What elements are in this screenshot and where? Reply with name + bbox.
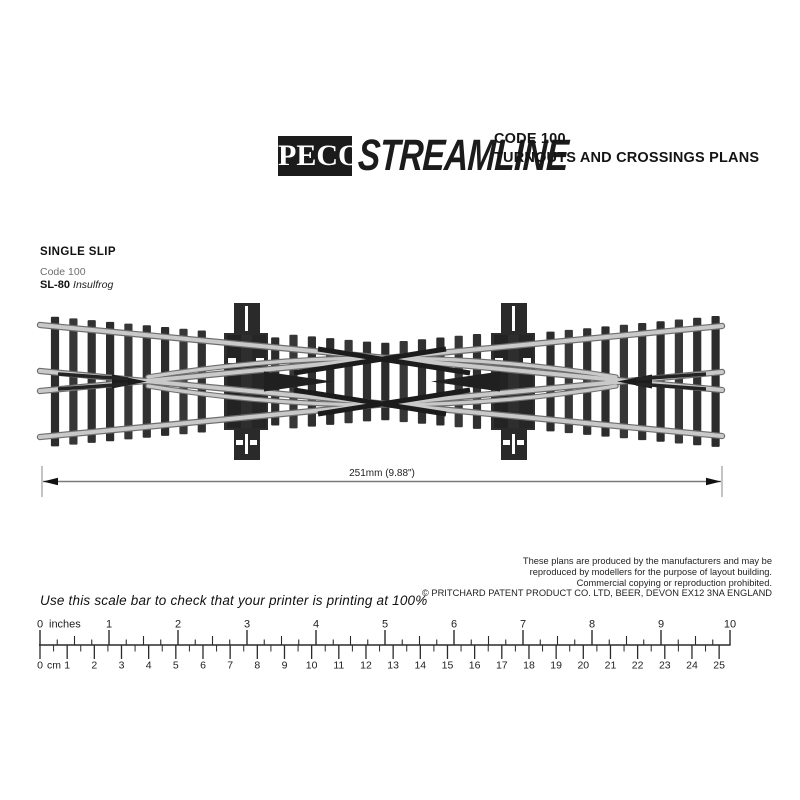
check-rail [58, 374, 128, 379]
cm-tick-label: 4 [146, 660, 152, 672]
cm-tick-label: 12 [360, 660, 372, 672]
inch-tick-label: 0 [37, 619, 43, 631]
cm-tick-label: 25 [713, 660, 725, 672]
dimension-label: 251mm (9.88") [349, 468, 415, 479]
cm-tick-label: 19 [550, 660, 562, 672]
inch-tick-label: 5 [382, 619, 388, 631]
product-sku-number: SL-80 [40, 279, 70, 291]
check-rail [58, 384, 128, 389]
dimension-arrow: 251mm (9.88") [0, 460, 800, 505]
cm-tick-label: 3 [119, 660, 125, 672]
copyright-line: These plans are produced by the manufact… [422, 556, 772, 567]
cm-unit-label: cm [47, 660, 61, 672]
sleeper [198, 331, 206, 433]
copyright-line: © PRITCHARD PATENT PRODUCT CO. LTD, BEER… [422, 588, 772, 599]
inches-unit-label: inches [49, 619, 81, 631]
inch-tick-label: 7 [520, 619, 526, 631]
ruler-marks: 0123456789100123456789101112131415161718… [37, 619, 736, 672]
cm-tick-label: 7 [227, 660, 233, 672]
printer-scale-bar: 0123456789100123456789101112131415161718… [0, 615, 800, 677]
sheet-title-code: CODE 100 [494, 130, 759, 149]
inch-tick-label: 10 [724, 619, 736, 631]
sheet-title-line: TURNOUTS AND CROSSINGS PLANS [494, 149, 759, 168]
cm-tick-label: 1 [64, 660, 70, 672]
sleeper [712, 316, 720, 447]
cm-tick-label: 23 [659, 660, 671, 672]
sleeper [565, 330, 573, 433]
sheet-title: CODE 100 TURNOUTS AND CROSSINGS PLANS [494, 130, 759, 168]
inch-tick-label: 9 [658, 619, 664, 631]
arrowhead-right [706, 478, 721, 485]
cm-tick-label: 9 [282, 660, 288, 672]
product-name: SINGLE SLIP [40, 246, 116, 258]
cm-tick-label: 2 [91, 660, 97, 672]
cm-tick-label: 14 [414, 660, 426, 672]
cm-tick-label: 17 [496, 660, 508, 672]
sleeper [675, 320, 683, 444]
product-sku: SL-80 Insulfrog [40, 279, 113, 291]
product-code: Code 100 [40, 266, 86, 278]
inch-tick-label: 4 [313, 619, 319, 631]
copyright-line: reproduced by modellers for the purpose … [422, 567, 772, 578]
sleeper [381, 343, 389, 421]
sleeper [88, 320, 96, 443]
sleeper [51, 317, 59, 447]
cm-tick-label: 21 [605, 660, 617, 672]
track-photo-single-slip [0, 295, 800, 470]
peco-logo: PECO [278, 136, 352, 176]
inch-tick-label: 8 [589, 619, 595, 631]
copyright-line: Commercial copying or reproduction prohi… [422, 578, 772, 589]
cm-tick-label: 22 [632, 660, 644, 672]
cm-tick-label: 13 [387, 660, 399, 672]
cm-tick-label: 20 [577, 660, 589, 672]
sleeper [69, 318, 77, 444]
cm-tick-label: 10 [306, 660, 318, 672]
arrowhead-left [43, 478, 58, 485]
cm-tick-label: 6 [200, 660, 206, 672]
copyright-notice: These plans are produced by the manufact… [422, 556, 772, 599]
inch-tick-label: 1 [106, 619, 112, 631]
cm-tick-label: 11 [333, 660, 344, 672]
left-point-mechanism [224, 303, 268, 460]
cm-tick-label: 16 [469, 660, 481, 672]
sleeper [693, 318, 701, 446]
cm-tick-label: 0 [37, 660, 43, 672]
cm-tick-label: 8 [254, 660, 260, 672]
scale-instruction: Use this scale bar to check that your pr… [40, 593, 427, 608]
inch-tick-label: 2 [175, 619, 181, 631]
inch-tick-label: 6 [451, 619, 457, 631]
product-frog-type: Insulfrog [73, 279, 113, 291]
cm-tick-label: 24 [686, 660, 698, 672]
cm-tick-label: 5 [173, 660, 179, 672]
inch-tick-label: 3 [244, 619, 250, 631]
cm-tick-label: 15 [442, 660, 454, 672]
cm-tick-label: 18 [523, 660, 535, 672]
